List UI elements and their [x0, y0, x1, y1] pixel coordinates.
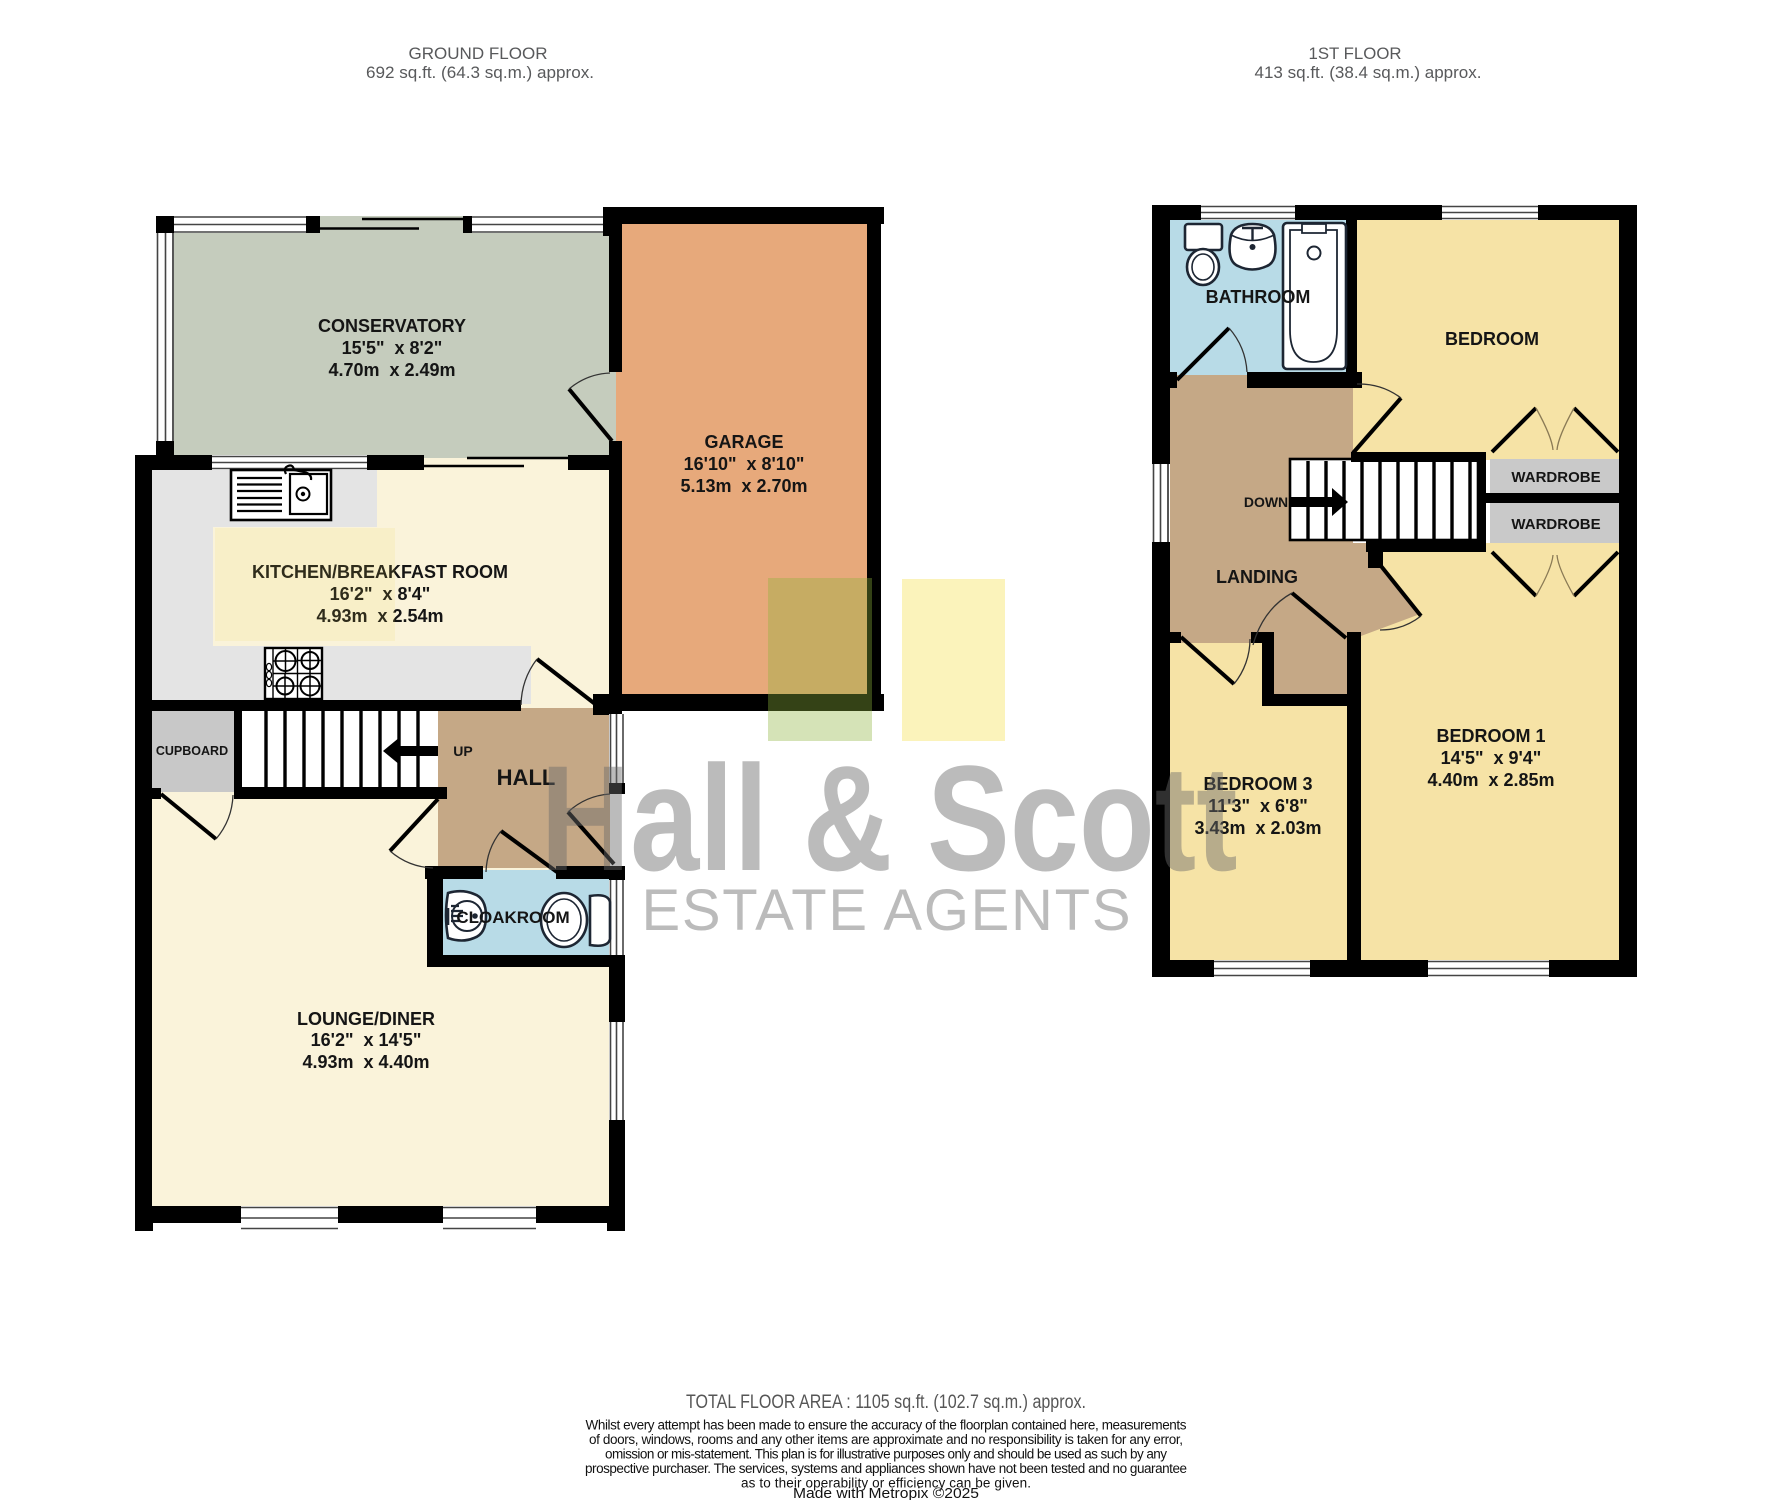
svg-text:15'5" x 8'2": 15'5" x 8'2": [342, 338, 443, 358]
svg-text:GROUND FLOOR: GROUND FLOOR: [409, 44, 548, 63]
svg-text:omission or mis-statement. Thi: omission or mis-statement. This plan is …: [605, 1447, 1167, 1462]
svg-text:5.13m x 2.70m: 5.13m x 2.70m: [680, 476, 807, 496]
svg-text:of doors, windows, rooms and a: of doors, windows, rooms and any other i…: [589, 1432, 1183, 1447]
svg-text:CONSERVATORY: CONSERVATORY: [318, 316, 466, 336]
svg-text:16'2" x 14'5": 16'2" x 14'5": [311, 1030, 422, 1050]
svg-text:4.70m x 2.49m: 4.70m x 2.49m: [328, 360, 455, 380]
svg-text:16'10" x 8'10": 16'10" x 8'10": [684, 454, 805, 474]
svg-text:CLOAKROOM: CLOAKROOM: [456, 908, 569, 927]
svg-text:LANDING: LANDING: [1216, 567, 1298, 587]
svg-text:BEDROOM: BEDROOM: [1445, 329, 1539, 349]
svg-text:1ST FLOOR: 1ST FLOOR: [1309, 44, 1402, 63]
svg-text:TOTAL FLOOR AREA : 1105 sq.ft.: TOTAL FLOOR AREA : 1105 sq.ft. (102.7 sq…: [686, 1392, 1086, 1413]
svg-text:WARDROBE: WARDROBE: [1511, 516, 1600, 533]
svg-text:WARDROBE: WARDROBE: [1511, 469, 1600, 486]
svg-text:14'5" x 9'4": 14'5" x 9'4": [1441, 748, 1542, 768]
svg-text:Made with Metropix ©2025: Made with Metropix ©2025: [793, 1485, 979, 1500]
svg-text:Whilst every attempt has been: Whilst every attempt has been made to en…: [586, 1418, 1187, 1433]
svg-text:ESTATE AGENTS: ESTATE AGENTS: [642, 878, 1131, 943]
svg-text:LOUNGE/DINER: LOUNGE/DINER: [297, 1009, 435, 1029]
svg-text:4.40m x 2.85m: 4.40m x 2.85m: [1427, 770, 1554, 790]
svg-text:prospective purchaser. The ser: prospective purchaser. The services, sys…: [585, 1461, 1187, 1476]
svg-text:BATHROOM: BATHROOM: [1206, 287, 1311, 307]
svg-text:692 sq.ft. (64.3 sq.m.) approx: 692 sq.ft. (64.3 sq.m.) approx.: [366, 63, 594, 82]
svg-text:GARAGE: GARAGE: [704, 432, 783, 452]
svg-text:UP: UP: [453, 743, 472, 759]
svg-text:BEDROOM 1: BEDROOM 1: [1436, 726, 1545, 746]
svg-text:DOWN: DOWN: [1244, 494, 1288, 510]
svg-text:413 sq.ft. (38.4 sq.m.) approx: 413 sq.ft. (38.4 sq.m.) approx.: [1255, 63, 1482, 82]
svg-text:CUPBOARD: CUPBOARD: [156, 744, 228, 758]
svg-text:Hall & Scott: Hall & Scott: [541, 734, 1238, 902]
svg-text:4.93m x 4.40m: 4.93m x 4.40m: [302, 1052, 429, 1072]
